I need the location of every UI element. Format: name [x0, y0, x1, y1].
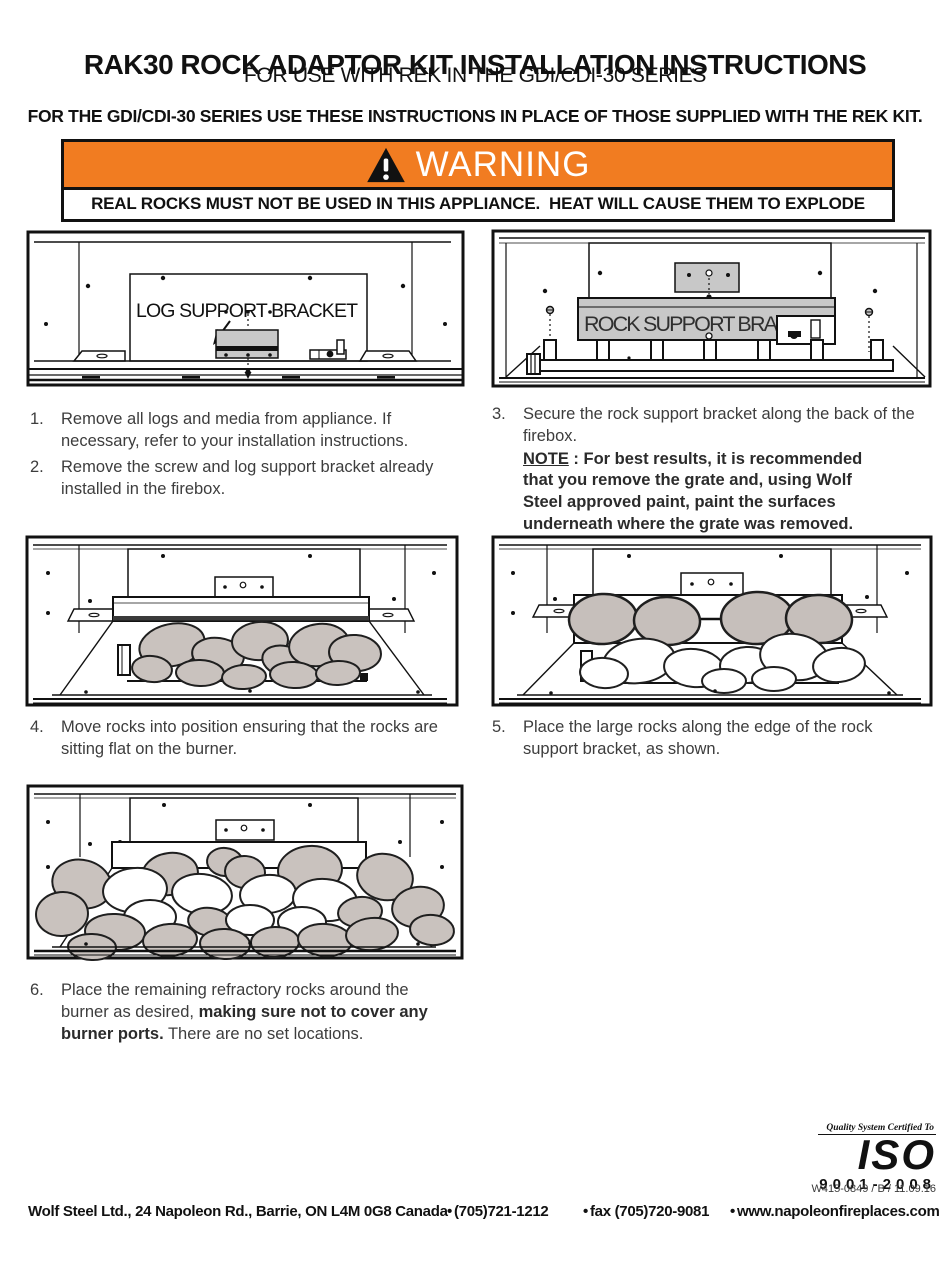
footer-phone-number: (705)721-1212: [454, 1203, 549, 1220]
step-number: 1.: [30, 409, 61, 431]
step-text: Remove the screw and log support bracket…: [61, 457, 475, 501]
step-6-end: There are no set locations.: [164, 1025, 364, 1043]
step-text: Place the remaining refractory rocks aro…: [61, 980, 440, 1045]
step-text: Secure the rock support bracket along th…: [523, 404, 942, 536]
log-bracket-callout: LOG SUPPORT BRACKET: [136, 300, 358, 322]
step-6: 6. Place the remaining refractory rocks …: [30, 980, 440, 1045]
step-3: 3. Secure the rock support bracket along…: [492, 404, 942, 536]
step-3-note: NOTE : For best results, it is recommend…: [523, 449, 895, 536]
warning-message: REAL ROCKS MUST NOT BE USED IN THIS APPL…: [64, 187, 892, 219]
step-number: 4.: [30, 717, 61, 739]
step-text: Place the large rocks along the edge of …: [523, 717, 892, 761]
step-number: 5.: [492, 717, 523, 739]
warning-triangle-icon: [366, 147, 406, 183]
page-subtitle: FOR USE WITH REK IN THE GDI/CDI-30 SERIE…: [0, 64, 950, 88]
footer-phone: •(705)721-1212: [447, 1203, 548, 1220]
bullet-icon: •: [583, 1203, 588, 1220]
step-text: Remove all logs and media from appliance…: [61, 409, 450, 453]
footer-website: •www.napoleonfireplaces.com: [730, 1203, 939, 1220]
footer-fax: •fax (705)720-9081: [583, 1203, 709, 1220]
step-5: 5. Place the large rocks along the edge …: [492, 717, 892, 761]
step-1: 1. Remove all logs and media from applia…: [30, 409, 450, 453]
figure-rock-support-bracket: ROCK SUPPORT BRACKET: [489, 228, 936, 391]
directive-line: FOR THE GDI/CDI-30 SERIES USE THESE INST…: [0, 106, 950, 127]
step-3-text: Secure the rock support bracket along th…: [523, 405, 915, 445]
document-page: RAK30 ROCK ADAPTOR KIT INSTALLATION INST…: [0, 0, 950, 1261]
warning-banner: WARNING REAL ROCKS MUST NOT BE USED IN T…: [61, 139, 895, 222]
bullet-icon: •: [730, 1203, 735, 1220]
step-2: 2. Remove the screw and log support brac…: [30, 457, 475, 501]
figure-large-rocks-on-bracket: [489, 533, 936, 710]
note-text: : For best results, it is recommended th…: [523, 450, 862, 533]
step-number: 6.: [30, 980, 61, 1002]
footer-company-address: Wolf Steel Ltd., 24 Napoleon Rd., Barrie…: [28, 1203, 448, 1220]
note-label: NOTE: [523, 450, 569, 468]
warning-label: WARNING: [416, 145, 591, 185]
step-number: 2.: [30, 457, 61, 479]
footer-website-url: www.napoleonfireplaces.com: [737, 1203, 940, 1220]
step-4: 4. Move rocks into position ensuring tha…: [30, 717, 470, 761]
step-text: Move rocks into position ensuring that t…: [61, 717, 470, 761]
figure-log-support-bracket: LOG SUPPORT BRACKET: [22, 228, 469, 391]
step-number: 3.: [492, 404, 523, 426]
iso-wordmark: ISO: [776, 1135, 936, 1175]
iso-certification-logo: Quality System Certified To ISO 9001-200…: [776, 1117, 936, 1193]
document-code: W415-0849 / B / 11.09.16: [811, 1183, 936, 1195]
warning-header: WARNING: [64, 142, 892, 187]
figure-rocks-on-burner: [22, 533, 462, 710]
bullet-icon: •: [447, 1203, 452, 1220]
figure-remaining-rocks: [20, 782, 470, 963]
footer-fax-number: fax (705)720-9081: [590, 1203, 709, 1220]
